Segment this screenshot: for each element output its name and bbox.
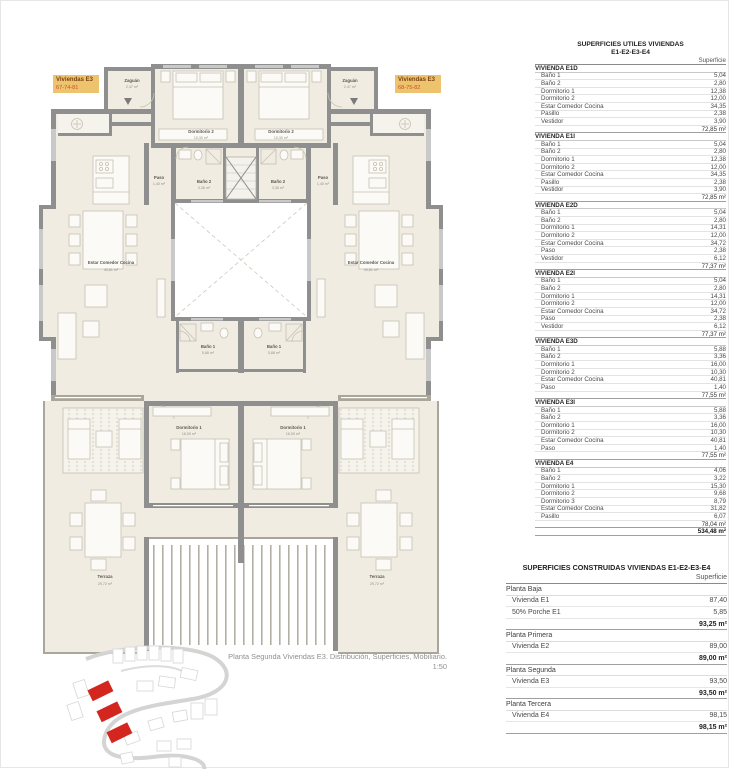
row-value: 5,04 bbox=[714, 277, 726, 284]
row-value: 10,30 bbox=[711, 369, 726, 376]
row-label: Estar Comedor Cocina bbox=[535, 308, 604, 315]
table-row: Baño 15,88 bbox=[535, 346, 726, 354]
row-value: 2,38 bbox=[714, 315, 726, 322]
row-value: 34,72 bbox=[711, 308, 726, 315]
row-label: Baño 2 bbox=[535, 285, 561, 292]
lightwell-void bbox=[175, 203, 307, 317]
svg-text:10,30 m²: 10,30 m² bbox=[194, 136, 209, 140]
group-header: Planta Primera bbox=[506, 630, 727, 642]
table-row: Baño 15,04 bbox=[535, 73, 726, 81]
row-label: Dormitorio 1 bbox=[535, 88, 575, 95]
row-value: 40,81 bbox=[711, 437, 726, 444]
svg-text:16,00 m²: 16,00 m² bbox=[182, 432, 197, 436]
unit-tag-left: Viviendas E3 67-74-81 bbox=[53, 75, 99, 93]
row-label: Estar Comedor Cocina bbox=[535, 103, 604, 110]
row-label: Dormitorio 2 bbox=[535, 429, 575, 436]
row-label: Pasillo bbox=[535, 110, 559, 117]
table-row: Vestidor6,12 bbox=[535, 255, 726, 263]
row-label: Baño 2 bbox=[535, 475, 561, 482]
row-value: 5,04 bbox=[714, 72, 726, 79]
table-row: Vivienda E393,50 bbox=[506, 676, 727, 688]
group-header: Planta Baja bbox=[506, 584, 727, 596]
row-label: Estar Comedor Cocina bbox=[535, 171, 604, 178]
construidas-body: SuperficiePlanta BajaVivienda E187,4050%… bbox=[506, 572, 727, 734]
row-value: 12,00 bbox=[711, 300, 726, 307]
superficies-construidas-table: SUPERFICIES CONSTRUIDAS VIVIENDAS E1-E2-… bbox=[506, 563, 727, 734]
svg-text:40,81 m²: 40,81 m² bbox=[104, 268, 119, 272]
section-header: VIVIENDA E2D bbox=[535, 202, 726, 210]
unit-tag-right-title: Viviendas E3 bbox=[398, 77, 439, 85]
utiles-title-line2: E1-E2-E3-E4 bbox=[535, 49, 726, 57]
row-label: Baño 2 bbox=[535, 148, 561, 155]
utiles-title-line1: SUPERFICIES UTILES VIVIENDAS bbox=[535, 41, 726, 49]
page: { "colors":{ "label_bg":"#eec36d","label… bbox=[0, 0, 729, 768]
row-value: 2,80 bbox=[714, 148, 726, 155]
svg-text:Dormitorio 2: Dormitorio 2 bbox=[188, 129, 214, 134]
row-value: 34,72 bbox=[711, 240, 726, 247]
row-label: Estar Comedor Cocina bbox=[535, 437, 604, 444]
row-value: 1,40 bbox=[714, 384, 726, 391]
unit-tag-left-numbers: 67-74-81 bbox=[56, 85, 97, 92]
section-total: 77,55 m² bbox=[535, 392, 726, 400]
row-value: 16,00 bbox=[711, 422, 726, 429]
table-row: Estar Comedor Cocina40,81 bbox=[535, 376, 726, 384]
table-row: Vivienda E289,00 bbox=[506, 642, 727, 654]
row-label: Baño 2 bbox=[535, 414, 561, 421]
unit-tag-right-numbers: 68-75-82 bbox=[398, 85, 439, 92]
svg-text:Dormitorio 2: Dormitorio 2 bbox=[268, 129, 294, 134]
row-label: Estar Comedor Cocina bbox=[535, 376, 604, 383]
row-value: 14,31 bbox=[711, 293, 726, 300]
column-header: Superficie bbox=[506, 572, 727, 584]
row-label: Baño 1 bbox=[535, 277, 561, 284]
table-row: Vestidor3,90 bbox=[535, 187, 726, 195]
row-value: 40,81 bbox=[711, 376, 726, 383]
row-label: 50% Porche E1 bbox=[506, 609, 561, 616]
row-label: Vestidor bbox=[535, 323, 563, 330]
svg-text:5,88 m²: 5,88 m² bbox=[202, 351, 215, 355]
row-value: 9,68 bbox=[714, 490, 726, 497]
row-value: 3,22 bbox=[714, 475, 726, 482]
row-value: 6,12 bbox=[714, 323, 726, 330]
section-total: 77,55 m² bbox=[535, 452, 726, 460]
row-label: Dormitorio 2 bbox=[535, 369, 575, 376]
svg-text:Baño 2: Baño 2 bbox=[197, 179, 212, 184]
row-value: 89,00 bbox=[709, 643, 727, 650]
svg-text:Terraza: Terraza bbox=[98, 574, 114, 579]
group-header: Planta Segunda bbox=[506, 665, 727, 677]
svg-text:5,88 m²: 5,88 m² bbox=[268, 351, 281, 355]
row-label: Baño 2 bbox=[535, 217, 561, 224]
svg-text:3,36 m²: 3,36 m² bbox=[272, 186, 285, 190]
group-header: Planta Tercera bbox=[506, 699, 727, 711]
utiles-body: SuperficieVIVIENDA E1DBaño 15,04Baño 22,… bbox=[535, 57, 726, 536]
row-value: 5,88 bbox=[714, 346, 726, 353]
row-value: 12,00 bbox=[711, 95, 726, 102]
svg-text:Dormitorio 1: Dormitorio 1 bbox=[176, 425, 202, 430]
row-value: 3,90 bbox=[714, 118, 726, 125]
table-row: Vestidor3,90 bbox=[535, 118, 726, 126]
row-value: 1,40 bbox=[714, 445, 726, 452]
section-total: 78,04 m² bbox=[535, 521, 726, 529]
table-row: Estar Comedor Cocina34,72 bbox=[535, 308, 726, 316]
unit-tag-right: Viviendas E3 68-75-82 bbox=[395, 75, 441, 93]
table-row: Baño 15,04 bbox=[535, 141, 726, 149]
row-label: Baño 2 bbox=[535, 80, 561, 87]
row-value: 14,31 bbox=[711, 224, 726, 231]
svg-text:10,30 m²: 10,30 m² bbox=[274, 136, 289, 140]
table-row: Pasillo6,07 bbox=[535, 513, 726, 521]
row-value: 8,79 bbox=[714, 498, 726, 505]
table-row: Paso1,40 bbox=[535, 384, 726, 392]
superficies-utiles-table: SUPERFICIES UTILES VIVIENDAS E1-E2-E3-E4… bbox=[535, 41, 726, 536]
row-value: 5,85 bbox=[713, 609, 727, 616]
column-header: Superficie bbox=[535, 57, 726, 65]
row-label: Paso bbox=[535, 384, 555, 391]
section-header: VIVIENDA E3D bbox=[535, 338, 726, 346]
unit-tag-left-title: Viviendas E3 bbox=[56, 77, 97, 85]
row-label: Pasillo bbox=[535, 513, 559, 520]
row-label: Dormitorio 1 bbox=[535, 483, 575, 490]
row-value: 16,00 bbox=[711, 361, 726, 368]
svg-text:40,81 m²: 40,81 m² bbox=[364, 268, 379, 272]
row-label: Dormitorio 3 bbox=[535, 498, 575, 505]
row-label: Vivienda E2 bbox=[506, 643, 549, 650]
row-label: Dormitorio 2 bbox=[535, 490, 575, 497]
table-row: Baño 15,04 bbox=[535, 209, 726, 217]
table-row: Estar Comedor Cocina34,72 bbox=[535, 240, 726, 248]
row-label: Vivienda E1 bbox=[506, 597, 549, 604]
row-value: 2,38 bbox=[714, 179, 726, 186]
section-header: VIVIENDA E3I bbox=[535, 399, 726, 407]
row-value: 15,30 bbox=[711, 483, 726, 490]
construidas-title: SUPERFICIES CONSTRUIDAS VIVIENDAS E1-E2-… bbox=[506, 563, 727, 572]
group-total: 93,25 m² bbox=[506, 619, 727, 631]
row-value: 5,04 bbox=[714, 141, 726, 148]
plan-caption: Planta Segunda Viviendas E3. Distribució… bbox=[127, 652, 447, 672]
table-row: Baño 15,04 bbox=[535, 278, 726, 286]
svg-text:16,00 m²: 16,00 m² bbox=[286, 432, 301, 436]
row-label: Dormitorio 2 bbox=[535, 164, 575, 171]
row-label: Baño 1 bbox=[535, 467, 561, 474]
row-value: 10,30 bbox=[711, 429, 726, 436]
row-label: Vivienda E4 bbox=[506, 712, 549, 719]
svg-text:Estar Comedor Cocina: Estar Comedor Cocina bbox=[348, 260, 395, 265]
row-value: 2,80 bbox=[714, 217, 726, 224]
grand-total: 534,48 m² bbox=[535, 528, 726, 536]
table-row: Estar Comedor Cocina34,35 bbox=[535, 103, 726, 111]
row-label: Vivienda E3 bbox=[506, 678, 549, 685]
row-value: 98,15 bbox=[709, 712, 727, 719]
row-value: 4,06 bbox=[714, 467, 726, 474]
table-row: Estar Comedor Cocina34,35 bbox=[535, 171, 726, 179]
row-value: 5,04 bbox=[714, 209, 726, 216]
row-value: 12,00 bbox=[711, 164, 726, 171]
row-value: 87,40 bbox=[709, 597, 727, 604]
svg-text:Estar Comedor Cocina: Estar Comedor Cocina bbox=[88, 260, 135, 265]
svg-text:1,40 m²: 1,40 m² bbox=[153, 182, 166, 186]
svg-text:29,72 m²: 29,72 m² bbox=[98, 582, 113, 586]
row-value: 2,38 bbox=[714, 110, 726, 117]
row-label: Paso bbox=[535, 247, 555, 254]
row-label: Dormitorio 1 bbox=[535, 422, 575, 429]
row-value: 3,36 bbox=[714, 414, 726, 421]
svg-text:Baño 1: Baño 1 bbox=[267, 344, 282, 349]
row-label: Paso bbox=[535, 445, 555, 452]
table-row: Paso1,40 bbox=[535, 445, 726, 453]
svg-text:Terraza: Terraza bbox=[370, 574, 386, 579]
row-label: Vestidor bbox=[535, 255, 563, 262]
svg-text:29,72 m²: 29,72 m² bbox=[370, 582, 385, 586]
table-row: Baño 14,06 bbox=[535, 468, 726, 476]
table-row: Vivienda E498,15 bbox=[506, 711, 727, 723]
row-label: Baño 1 bbox=[535, 346, 561, 353]
table-row: Vivienda E187,40 bbox=[506, 596, 727, 608]
row-value: 93,50 bbox=[709, 678, 727, 685]
svg-text:Paso: Paso bbox=[318, 175, 329, 180]
svg-text:Zaguán: Zaguán bbox=[124, 78, 140, 83]
row-label: Paso bbox=[535, 315, 555, 322]
row-value: 12,38 bbox=[711, 156, 726, 163]
table-row: Baño 15,88 bbox=[535, 407, 726, 415]
section-total: 72,85 m² bbox=[535, 126, 726, 134]
svg-text:1,40 m²: 1,40 m² bbox=[317, 182, 330, 186]
row-value: 31,82 bbox=[711, 505, 726, 512]
highlighted-buildings bbox=[87, 680, 132, 743]
section-header: VIVIENDA E1I bbox=[535, 133, 726, 141]
row-value: 2,80 bbox=[714, 285, 726, 292]
row-label: Baño 2 bbox=[535, 353, 561, 360]
row-value: 12,00 bbox=[711, 232, 726, 239]
row-label: Dormitorio 1 bbox=[535, 361, 575, 368]
row-label: Dormitorio 1 bbox=[535, 293, 575, 300]
row-value: 3,90 bbox=[714, 186, 726, 193]
row-label: Pasillo bbox=[535, 179, 559, 186]
row-label: Estar Comedor Cocina bbox=[535, 505, 604, 512]
row-value: 5,88 bbox=[714, 407, 726, 414]
svg-text:2,47 m²: 2,47 m² bbox=[126, 85, 139, 89]
svg-text:Dormitorio 1: Dormitorio 1 bbox=[280, 425, 306, 430]
row-value: 6,12 bbox=[714, 255, 726, 262]
row-label: Dormitorio 1 bbox=[535, 224, 575, 231]
row-value: 12,38 bbox=[711, 88, 726, 95]
row-value: 3,36 bbox=[714, 353, 726, 360]
row-value: 2,80 bbox=[714, 80, 726, 87]
svg-text:Baño 2: Baño 2 bbox=[271, 179, 286, 184]
table-row: Paso2,38 bbox=[535, 247, 726, 255]
stairwell bbox=[226, 157, 256, 199]
plan-caption-scale: 1:50 bbox=[127, 662, 447, 672]
row-label: Dormitorio 2 bbox=[535, 300, 575, 307]
svg-text:Zaguán: Zaguán bbox=[342, 78, 358, 83]
svg-text:Paso: Paso bbox=[154, 175, 165, 180]
table-row: Pasillo2,38 bbox=[535, 179, 726, 187]
row-label: Vestidor bbox=[535, 186, 563, 193]
row-label: Dormitorio 2 bbox=[535, 232, 575, 239]
section-header: VIVIENDA E1D bbox=[535, 65, 726, 73]
group-total: 98,15 m² bbox=[506, 722, 727, 734]
row-label: Baño 1 bbox=[535, 141, 561, 148]
table-row: Pasillo2,38 bbox=[535, 111, 726, 119]
svg-text:2,47 m²: 2,47 m² bbox=[344, 85, 357, 89]
row-label: Estar Comedor Cocina bbox=[535, 240, 604, 247]
table-row: Paso2,38 bbox=[535, 316, 726, 324]
table-row: Vestidor6,12 bbox=[535, 323, 726, 331]
svg-text:Baño 1: Baño 1 bbox=[201, 344, 216, 349]
section-header: VIVIENDA E4 bbox=[535, 460, 726, 468]
group-total: 93,50 m² bbox=[506, 688, 727, 700]
section-total: 77,37 m² bbox=[535, 331, 726, 339]
section-total: 77,37 m² bbox=[535, 263, 726, 271]
row-label: Baño 1 bbox=[535, 209, 561, 216]
row-value: 6,07 bbox=[714, 513, 726, 520]
section-header: VIVIENDA E2I bbox=[535, 270, 726, 278]
row-label: Dormitorio 1 bbox=[535, 156, 575, 163]
plan-caption-line1: Planta Segunda Viviendas E3. Distribució… bbox=[127, 652, 447, 662]
section-total: 72,85 m² bbox=[535, 194, 726, 202]
row-label: Baño 1 bbox=[535, 407, 561, 414]
table-row: Estar Comedor Cocina31,82 bbox=[535, 506, 726, 514]
row-value: 34,35 bbox=[711, 103, 726, 110]
group-total: 89,00 m² bbox=[506, 653, 727, 665]
svg-text:3,36 m²: 3,36 m² bbox=[198, 186, 211, 190]
table-row: Estar Comedor Cocina40,81 bbox=[535, 437, 726, 445]
table-row: 50% Porche E15,85 bbox=[506, 607, 727, 619]
row-label: Vestidor bbox=[535, 118, 563, 125]
row-value: 34,35 bbox=[711, 171, 726, 178]
row-label: Baño 1 bbox=[535, 72, 561, 79]
row-label: Dormitorio 2 bbox=[535, 95, 575, 102]
row-value: 2,38 bbox=[714, 247, 726, 254]
